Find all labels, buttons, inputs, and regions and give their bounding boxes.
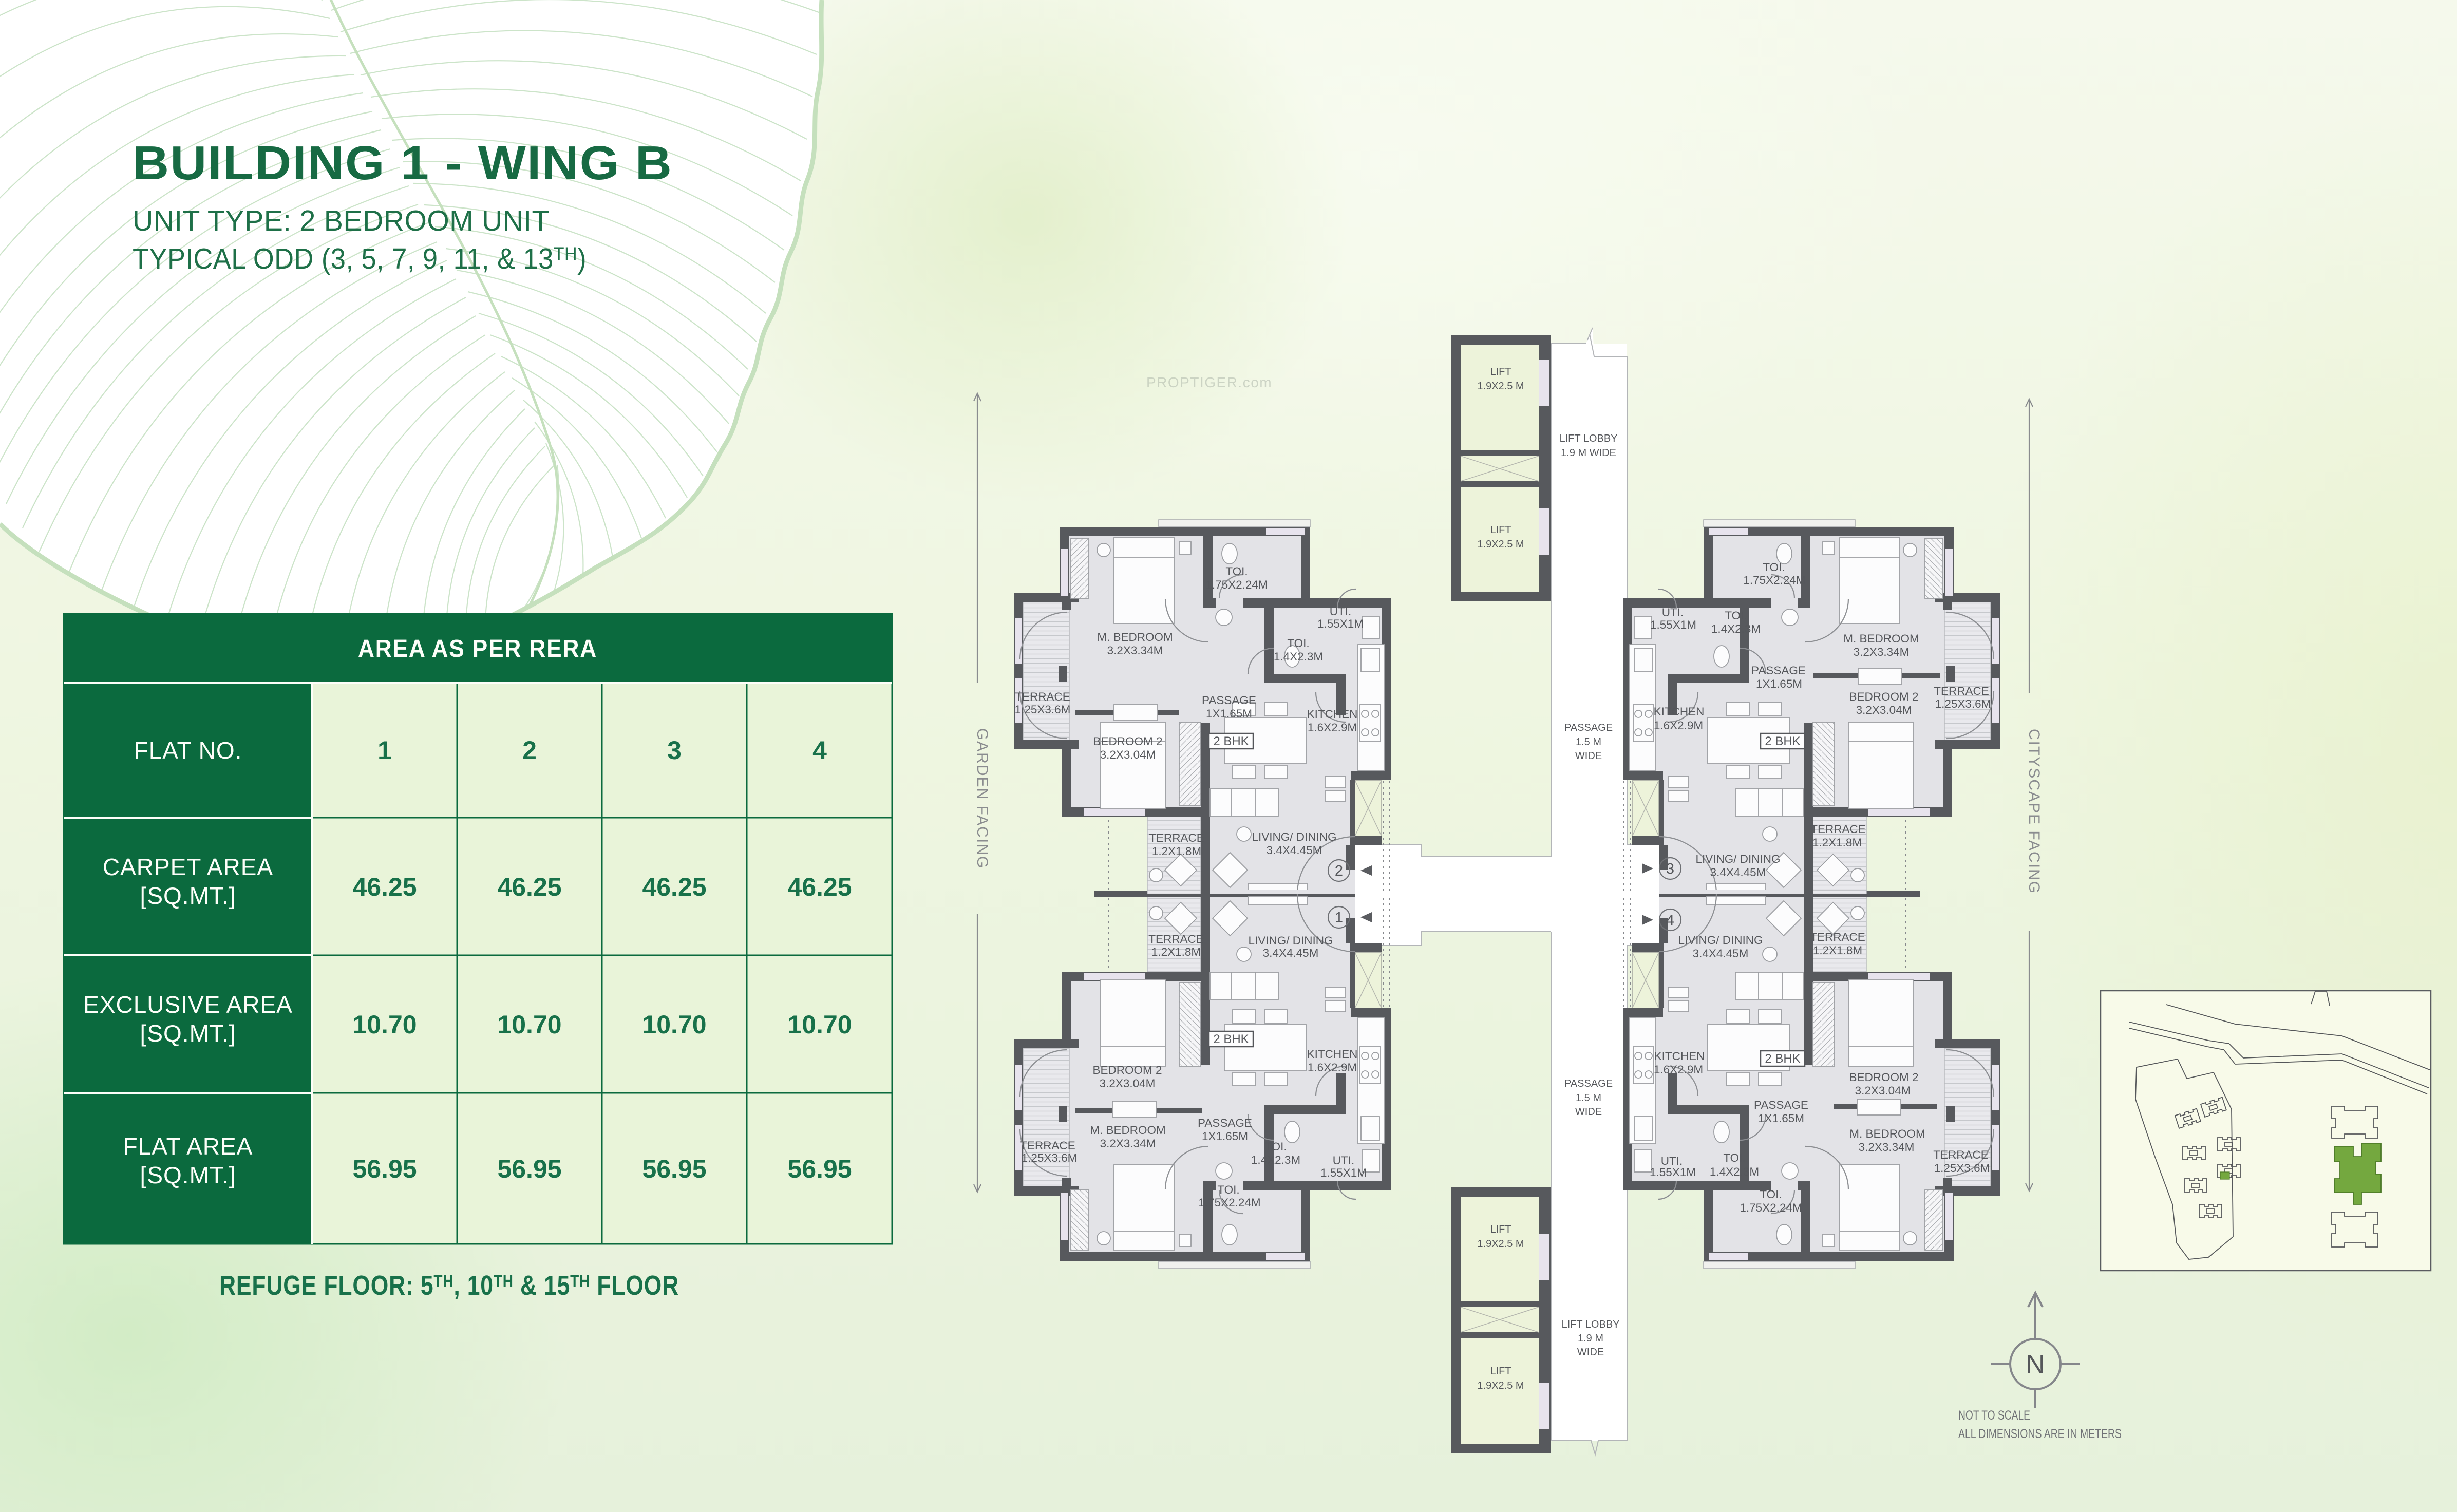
svg-text:FLAT AREA: FLAT AREA [123, 1133, 253, 1160]
svg-text:EXCLUSIVE AREA: EXCLUSIVE AREA [83, 991, 293, 1018]
svg-text:1.5 M: 1.5 M [1576, 1092, 1601, 1104]
svg-text:3: 3 [667, 736, 682, 765]
svg-text:LIFT: LIFT [1490, 366, 1511, 377]
svg-text:PASSAGE: PASSAGE [1564, 1078, 1613, 1089]
svg-text:1.55X1M: 1.55X1M [1650, 618, 1696, 631]
svg-text:WIDE: WIDE [1575, 1106, 1602, 1118]
svg-text:TERRACE: TERRACE [1020, 1139, 1075, 1152]
svg-text:2 BHK: 2 BHK [1213, 734, 1249, 748]
svg-text:1.75X2.24M: 1.75X2.24M [1740, 1201, 1802, 1214]
svg-text:1.55X1M: 1.55X1M [1317, 617, 1364, 630]
svg-text:3.2X3.04M: 3.2X3.04M [1855, 1084, 1911, 1097]
svg-text:FLAT NO.: FLAT NO. [134, 737, 242, 764]
svg-text:4: 4 [812, 736, 827, 765]
svg-text:UTI.: UTI. [1333, 1154, 1355, 1167]
svg-text:1.6X2.9M: 1.6X2.9M [1654, 719, 1703, 732]
svg-text:TOI.: TOI. [1763, 561, 1785, 574]
svg-text:1.2X1.8M: 1.2X1.8M [1813, 944, 1862, 957]
svg-text:[SQ.MT.]: [SQ.MT.] [140, 1162, 236, 1188]
svg-text:3: 3 [1666, 861, 1674, 877]
svg-text:[SQ.MT.]: [SQ.MT.] [140, 882, 236, 909]
svg-text:LIVING/ DINING: LIVING/ DINING [1248, 934, 1333, 947]
svg-text:10.70: 10.70 [352, 1010, 417, 1039]
svg-text:BEDROOM 2: BEDROOM 2 [1849, 690, 1918, 703]
svg-text:1.25X3.6M: 1.25X3.6M [1022, 1151, 1078, 1164]
svg-text:1.75X2.24M: 1.75X2.24M [1743, 574, 1805, 587]
svg-text:N: N [2026, 1350, 2045, 1379]
svg-text:1.5 M: 1.5 M [1576, 736, 1601, 748]
svg-text:UNIT TYPE: 2 BEDROOM UNIT: UNIT TYPE: 2 BEDROOM UNIT [133, 204, 550, 237]
svg-text:CARPET AREA: CARPET AREA [103, 854, 273, 880]
svg-text:46.25: 46.25 [352, 873, 417, 901]
svg-text:1.6X2.9M: 1.6X2.9M [1654, 1063, 1703, 1076]
svg-text:1.2X1.8M: 1.2X1.8M [1812, 836, 1862, 849]
svg-text:1.9X2.5 M: 1.9X2.5 M [1477, 539, 1524, 550]
svg-text:KITCHEN: KITCHEN [1654, 1050, 1705, 1063]
svg-text:10.70: 10.70 [787, 1010, 852, 1039]
svg-text:M. BEDROOM: M. BEDROOM [1090, 1124, 1166, 1137]
svg-text:1.25X3.6M: 1.25X3.6M [1934, 1162, 1990, 1175]
svg-text:1.4X2.3M: 1.4X2.3M [1711, 622, 1761, 635]
svg-text:TOI.: TOI. [1760, 1188, 1782, 1201]
svg-text:1X1.65M: 1X1.65M [1758, 1112, 1804, 1125]
svg-text:TERRACE: TERRACE [1934, 685, 1989, 697]
svg-text:3.2X3.34M: 3.2X3.34M [1859, 1141, 1915, 1154]
svg-text:46.25: 46.25 [497, 873, 561, 901]
svg-text:3.2X3.04M: 3.2X3.04M [1100, 748, 1156, 761]
svg-text:PASSAGE: PASSAGE [1754, 1099, 1808, 1111]
svg-text:PASSAGE: PASSAGE [1564, 722, 1613, 733]
svg-text:1X1.65M: 1X1.65M [1756, 677, 1802, 690]
svg-text:BUILDING 1 - WING B: BUILDING 1 - WING B [133, 136, 673, 190]
svg-text:3.2X3.34M: 3.2X3.34M [1107, 644, 1163, 657]
svg-text:LIFT: LIFT [1490, 1224, 1511, 1235]
svg-text:KITCHEN: KITCHEN [1307, 708, 1358, 721]
svg-text:1.75X2.24M: 1.75X2.24M [1198, 1196, 1260, 1209]
svg-text:2 BHK: 2 BHK [1213, 1032, 1249, 1046]
svg-text:3.2X3.34M: 3.2X3.34M [1854, 646, 1910, 658]
svg-text:PROPTIGER.com: PROPTIGER.com [1146, 374, 1272, 390]
svg-text:[SQ.MT.]: [SQ.MT.] [140, 1020, 236, 1047]
svg-text:TOI.: TOI. [1225, 565, 1248, 578]
svg-text:BEDROOM 2: BEDROOM 2 [1849, 1071, 1918, 1084]
svg-text:1.4X2.3M: 1.4X2.3M [1710, 1165, 1759, 1178]
svg-text:TOI.: TOI. [1723, 1151, 1745, 1164]
svg-text:46.25: 46.25 [642, 873, 706, 901]
svg-text:3.2X3.04M: 3.2X3.04M [1856, 704, 1912, 716]
svg-text:BEDROOM 2: BEDROOM 2 [1092, 1064, 1162, 1076]
svg-text:1.2X1.8M: 1.2X1.8M [1152, 845, 1201, 858]
svg-text:REFUGE FLOOR: 5TH, 10TH & 15TH: REFUGE FLOOR: 5TH, 10TH & 15TH FLOOR [219, 1270, 679, 1301]
svg-text:WIDE: WIDE [1575, 750, 1602, 762]
svg-text:CITYSCAPE FACING: CITYSCAPE FACING [2026, 729, 2043, 894]
svg-text:1.55X1M: 1.55X1M [1650, 1166, 1696, 1179]
svg-text:1: 1 [1335, 910, 1343, 926]
svg-text:WIDE: WIDE [1577, 1347, 1604, 1358]
svg-text:BEDROOM 2: BEDROOM 2 [1093, 735, 1162, 748]
svg-text:1X1.65M: 1X1.65M [1202, 1130, 1248, 1143]
svg-text:56.95: 56.95 [642, 1155, 706, 1183]
svg-text:ALL DIMENSIONS ARE IN METERS: ALL DIMENSIONS ARE IN METERS [1958, 1427, 2122, 1441]
svg-text:10.70: 10.70 [497, 1010, 561, 1039]
svg-text:2: 2 [1335, 863, 1343, 879]
svg-text:TYPICAL ODD (3, 5, 7, 9, 11, &: TYPICAL ODD (3, 5, 7, 9, 11, & 13TH) [133, 242, 587, 275]
svg-text:TERRACE: TERRACE [1810, 823, 1866, 836]
svg-text:TERRACE: TERRACE [1933, 1148, 1989, 1161]
svg-text:GARDEN FACING: GARDEN FACING [974, 728, 991, 869]
svg-text:3.4X4.45M: 3.4X4.45M [1693, 947, 1749, 960]
svg-text:M. BEDROOM: M. BEDROOM [1849, 1127, 1925, 1140]
svg-text:2 BHK: 2 BHK [1765, 734, 1800, 748]
svg-text:UTI.: UTI. [1662, 606, 1684, 619]
svg-text:4: 4 [1666, 912, 1674, 929]
svg-text:UTI.: UTI. [1330, 605, 1352, 618]
svg-text:LIVING/ DINING: LIVING/ DINING [1252, 830, 1336, 843]
svg-text:1X1.65M: 1X1.65M [1206, 707, 1252, 720]
svg-text:PASSAGE: PASSAGE [1751, 664, 1806, 677]
svg-text:1: 1 [377, 736, 392, 765]
svg-text:LIVING/ DINING: LIVING/ DINING [1678, 934, 1763, 947]
svg-text:1.9X2.5 M: 1.9X2.5 M [1477, 1380, 1524, 1391]
svg-text:3.4X4.45M: 3.4X4.45M [1710, 866, 1766, 879]
svg-text:1.55X1M: 1.55X1M [1320, 1166, 1367, 1179]
svg-text:56.95: 56.95 [497, 1155, 561, 1183]
svg-text:1.25X3.6M: 1.25X3.6M [1015, 703, 1071, 716]
svg-text:56.95: 56.95 [787, 1155, 852, 1183]
svg-text:TOI.: TOI. [1725, 609, 1747, 622]
svg-text:TOI.: TOI. [1217, 1183, 1239, 1196]
svg-text:LIFT: LIFT [1490, 524, 1511, 536]
svg-text:TERRACE: TERRACE [1810, 931, 1865, 943]
svg-text:KITCHEN: KITCHEN [1654, 705, 1705, 718]
svg-text:2 BHK: 2 BHK [1765, 1052, 1800, 1066]
svg-text:1.9 M: 1.9 M [1578, 1333, 1603, 1344]
svg-text:1.6X2.9M: 1.6X2.9M [1308, 1061, 1357, 1074]
svg-text:1.4X2.3M: 1.4X2.3M [1274, 650, 1323, 663]
svg-text:1.75X2.24M: 1.75X2.24M [1205, 578, 1268, 591]
svg-text:TERRACE: TERRACE [1148, 933, 1204, 946]
svg-text:1.6X2.9M: 1.6X2.9M [1308, 721, 1357, 734]
svg-text:LIFT: LIFT [1490, 1366, 1511, 1377]
svg-text:TERRACE: TERRACE [1015, 690, 1070, 703]
svg-text:1.9X2.5 M: 1.9X2.5 M [1477, 381, 1524, 392]
svg-text:1.9 M WIDE: 1.9 M WIDE [1561, 447, 1616, 459]
svg-text:10.70: 10.70 [642, 1010, 706, 1039]
svg-text:PASSAGE: PASSAGE [1198, 1117, 1252, 1129]
svg-text:LIFT LOBBY: LIFT LOBBY [1561, 1319, 1619, 1330]
svg-text:3.4X4.45M: 3.4X4.45M [1267, 844, 1322, 857]
svg-text:3.4X4.45M: 3.4X4.45M [1263, 947, 1319, 959]
svg-text:2: 2 [522, 736, 537, 765]
svg-text:AREA AS PER RERA: AREA AS PER RERA [358, 635, 597, 663]
svg-text:TOI.: TOI. [1287, 637, 1309, 650]
svg-text:1.4X2.3M: 1.4X2.3M [1251, 1154, 1300, 1166]
svg-text:56.95: 56.95 [352, 1155, 417, 1183]
svg-text:M. BEDROOM: M. BEDROOM [1097, 631, 1173, 644]
svg-text:KITCHEN: KITCHEN [1307, 1048, 1358, 1061]
svg-text:NOT TO SCALE: NOT TO SCALE [1958, 1408, 2030, 1423]
svg-text:1.9X2.5 M: 1.9X2.5 M [1477, 1238, 1524, 1250]
svg-text:46.25: 46.25 [787, 873, 852, 901]
svg-text:1.2X1.8M: 1.2X1.8M [1151, 946, 1201, 958]
svg-text:LIVING/ DINING: LIVING/ DINING [1695, 853, 1780, 865]
svg-text:M. BEDROOM: M. BEDROOM [1843, 632, 1919, 645]
svg-text:PASSAGE: PASSAGE [1202, 694, 1256, 707]
svg-text:3.2X3.34M: 3.2X3.34M [1100, 1137, 1156, 1150]
svg-text:TERRACE: TERRACE [1149, 831, 1204, 844]
svg-text:LIFT LOBBY: LIFT LOBBY [1559, 433, 1617, 444]
svg-text:TOI.: TOI. [1264, 1140, 1287, 1153]
svg-text:1.25X3.6M: 1.25X3.6M [1935, 697, 1991, 710]
svg-text:3.2X3.04M: 3.2X3.04M [1100, 1077, 1156, 1090]
